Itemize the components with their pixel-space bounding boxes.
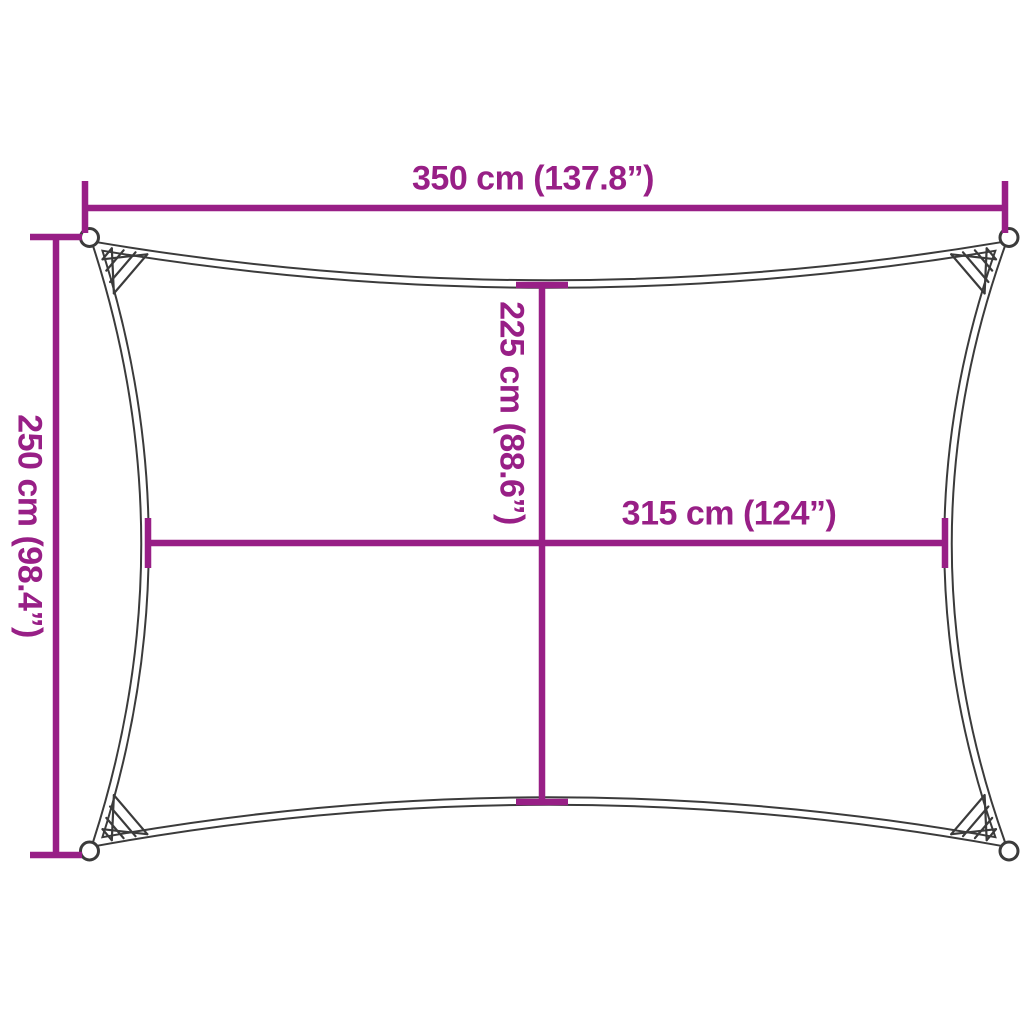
dim-label-height-overall: 250 cm (98.4”) bbox=[10, 414, 49, 638]
dim-label-width-inner: 315 cm (124”) bbox=[622, 495, 837, 534]
dim-label-width-overall: 350 cm (137.8”) bbox=[412, 160, 654, 199]
dim-label-height-inner: 225 cm (88.6”) bbox=[492, 301, 531, 525]
corner-ring-top-left bbox=[81, 229, 148, 294]
corner-ring-top-right bbox=[951, 229, 1018, 294]
corner-ring-bottom-right bbox=[951, 795, 1018, 860]
product-dimension-diagram: 350 cm (137.8”) 250 cm (98.4”) 225 cm (8… bbox=[0, 0, 1024, 1024]
corner-ring-bottom-left bbox=[81, 795, 148, 860]
